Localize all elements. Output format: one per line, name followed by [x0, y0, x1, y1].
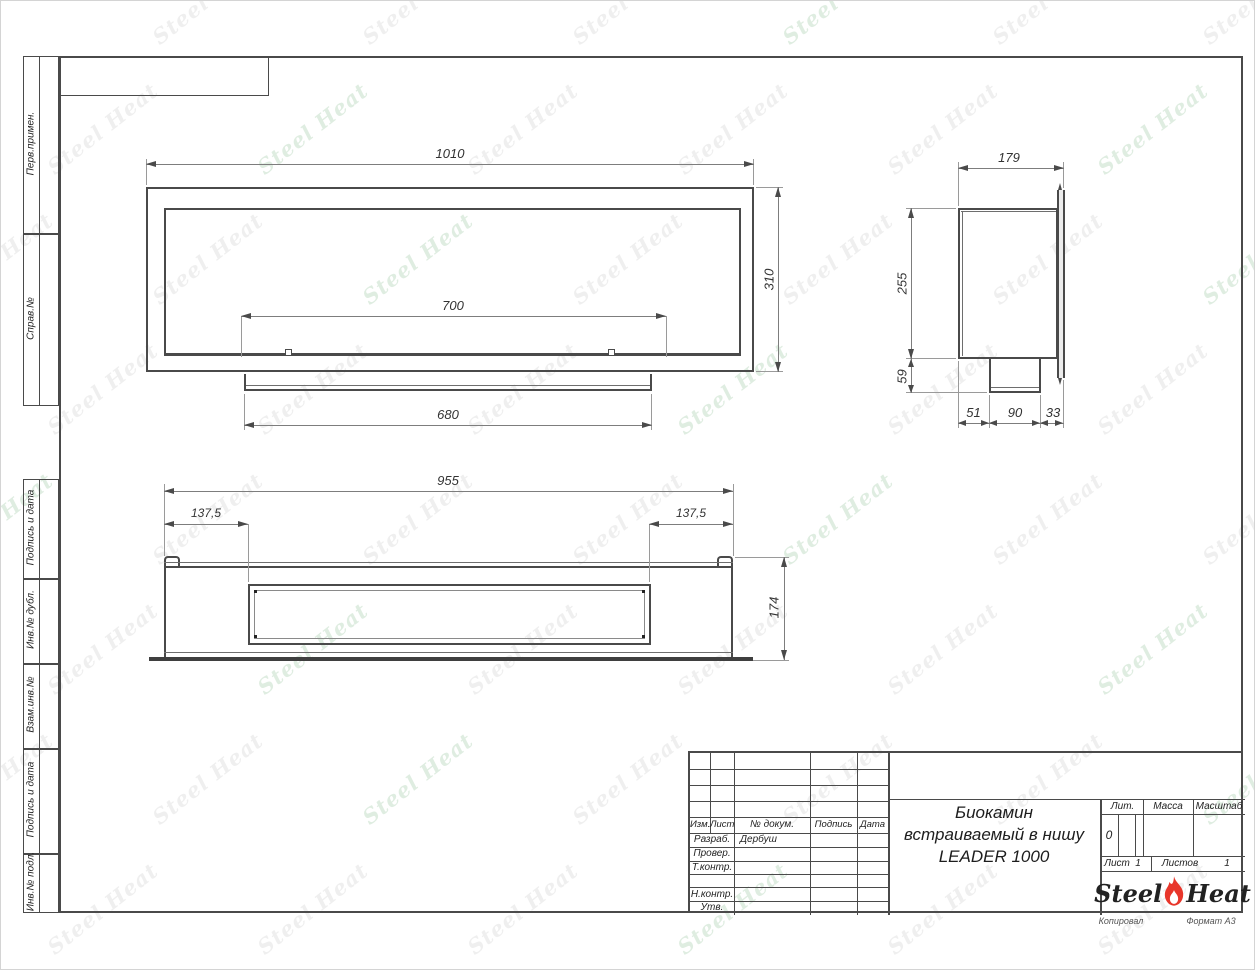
doc-title-line: Биокамин	[888, 803, 1100, 823]
arrowhead	[241, 313, 251, 319]
line	[164, 563, 166, 659]
lit-header: Лит.	[1102, 801, 1143, 812]
line	[991, 387, 1039, 388]
col-date: Дата	[857, 819, 888, 830]
arrowhead	[781, 557, 787, 567]
arrowhead	[989, 420, 997, 426]
company-logo: Steel Heat	[1100, 871, 1245, 915]
dim-side-depth: 179	[959, 150, 1059, 165]
copied-note: Копировал	[1071, 916, 1171, 926]
line	[39, 479, 40, 579]
lit-value: 0	[1100, 828, 1118, 842]
watermark-text: Steel Heat	[147, 0, 268, 49]
dimension-line	[778, 187, 779, 372]
mass-header: Масса	[1143, 801, 1193, 812]
sheet-label: Лист	[1103, 858, 1131, 869]
watermark-text: Steel Heat	[0, 0, 58, 49]
watermark-text: Steel Heat	[777, 0, 898, 49]
arrowhead	[1040, 420, 1048, 426]
arrowhead	[146, 161, 156, 167]
top-view-flange	[149, 657, 753, 661]
drawing-sheet: Steel HeatSteel HeatSteel HeatSteel Heat…	[0, 0, 1255, 970]
arrowhead	[723, 488, 733, 494]
line	[164, 562, 733, 563]
arrowhead	[642, 422, 652, 428]
scale-header: Масштаб	[1193, 801, 1245, 812]
arrowhead	[1054, 165, 1064, 171]
arrowhead	[744, 161, 754, 167]
arrowhead	[781, 650, 787, 660]
line	[1100, 814, 1245, 815]
sheet-value: 1	[1128, 858, 1148, 869]
corner-dot	[254, 635, 257, 638]
dimension-line	[241, 316, 666, 317]
staff-label: Провер.	[690, 848, 734, 859]
flange-tip	[1058, 378, 1062, 385]
extension-line	[649, 524, 650, 582]
staff-label: Утв.	[690, 902, 734, 913]
staff-label: Т.контр.	[690, 862, 734, 873]
line	[690, 801, 888, 802]
dim-top-left-offset: 137,5	[164, 506, 248, 520]
sidebar-label: Справ.№	[26, 249, 37, 389]
extension-line	[753, 660, 789, 661]
arrowhead	[244, 422, 254, 428]
dim-top-depth: 174	[767, 573, 782, 643]
dimension-line	[958, 423, 1064, 424]
dim-top-right-offset: 137,5	[649, 506, 733, 520]
arrowhead	[908, 208, 914, 218]
dim-front-height: 310	[762, 245, 777, 315]
flange-tip	[1058, 183, 1062, 190]
arrowhead	[164, 521, 174, 527]
line	[690, 785, 888, 786]
dimension-line	[164, 524, 248, 525]
dim-side-seg1: 51	[958, 405, 989, 420]
extension-line	[733, 484, 734, 556]
line	[1118, 814, 1119, 856]
dim-side-height: 255	[895, 249, 910, 319]
line	[690, 874, 888, 875]
extension-line	[248, 524, 249, 582]
sidebar-label: Перв.примен.	[26, 74, 37, 214]
line	[39, 854, 40, 913]
arrowhead	[981, 420, 989, 426]
corner-dot	[642, 590, 645, 593]
dim-front-tray: 680	[398, 407, 498, 422]
line	[857, 753, 858, 915]
line	[1135, 814, 1136, 856]
sheets-value: 1	[1215, 858, 1239, 869]
dim-side-seg2: 90	[989, 405, 1041, 420]
line	[690, 887, 888, 888]
dim-front-opening: 700	[403, 298, 503, 313]
staff-value: Дербуш	[740, 834, 810, 845]
dimension-line	[244, 425, 652, 426]
dim-front-width: 1010	[400, 146, 500, 161]
side-view-body	[958, 208, 1058, 359]
line	[731, 563, 733, 659]
top-stamp-box	[59, 56, 269, 96]
line	[690, 769, 888, 770]
corner-dot	[642, 635, 645, 638]
arrowhead	[1032, 420, 1040, 426]
extension-line	[906, 392, 987, 393]
doc-title-line: встраиваемый в нишу	[888, 825, 1100, 845]
watermark-text: Steel Heat	[1197, 0, 1255, 49]
side-view-flange	[1057, 190, 1065, 378]
line	[734, 753, 735, 915]
extension-line	[241, 316, 242, 357]
line	[961, 211, 1056, 212]
line	[164, 566, 733, 568]
dimension-line	[164, 491, 733, 492]
line	[39, 664, 40, 749]
arrowhead	[958, 420, 966, 426]
logo-word-steel: Steel	[1094, 879, 1162, 908]
format-note: Формат А3	[1161, 916, 1255, 926]
arrowhead	[1055, 420, 1063, 426]
title-block: Изм. Лист № докум. Подпись Дата Разраб. …	[688, 751, 1243, 913]
sidebar-label: Инв.№ подл.	[26, 812, 37, 952]
doc-title-line: LEADER 1000	[888, 847, 1100, 867]
line	[39, 749, 40, 854]
dimension-line	[911, 208, 912, 359]
logo-word-heat: Heat	[1186, 879, 1251, 908]
line	[39, 234, 40, 406]
front-tray	[244, 374, 652, 391]
col-izm: Изм.	[690, 819, 710, 830]
col-list: Лист	[710, 819, 734, 830]
dim-side-seg3: 33	[1041, 405, 1065, 420]
arrowhead	[656, 313, 666, 319]
arrowhead	[775, 362, 781, 372]
arrowhead	[775, 187, 781, 197]
watermark-text: Steel Heat	[357, 0, 478, 49]
line	[246, 385, 650, 386]
extension-line	[164, 484, 165, 556]
arrowhead	[238, 521, 248, 527]
line	[962, 211, 963, 356]
flame-icon	[1163, 876, 1185, 911]
line	[888, 799, 1245, 800]
sheets-label: Листов	[1158, 858, 1202, 869]
line	[39, 579, 40, 664]
arrowhead	[649, 521, 659, 527]
staff-label: Разраб.	[690, 834, 734, 845]
line	[39, 56, 40, 234]
extension-line	[666, 316, 667, 357]
extension-line	[1063, 380, 1064, 428]
arrowhead	[723, 521, 733, 527]
top-view-opening-inner	[254, 590, 645, 639]
line	[810, 753, 811, 915]
line	[690, 817, 888, 818]
front-view-opening	[164, 208, 741, 356]
arrowhead	[958, 165, 968, 171]
line	[1151, 856, 1152, 871]
front-burner-tab	[608, 349, 615, 356]
col-doc: № докум.	[734, 819, 810, 830]
corner-dot	[254, 590, 257, 593]
dim-top-width: 955	[398, 473, 498, 488]
watermark-text: Steel Heat	[987, 0, 1108, 49]
arrowhead	[164, 488, 174, 494]
dim-side-tray-height: 59	[895, 342, 910, 412]
watermark-text: Steel Heat	[567, 0, 688, 49]
line	[1100, 856, 1245, 857]
dimension-line	[649, 524, 733, 525]
front-burner-tab	[285, 349, 292, 356]
dimension-line	[784, 557, 785, 660]
dimension-line	[146, 164, 754, 165]
col-sign: Подпись	[810, 819, 857, 830]
dimension-line	[958, 168, 1064, 169]
line	[164, 652, 733, 653]
staff-label: Н.контр.	[690, 889, 734, 900]
